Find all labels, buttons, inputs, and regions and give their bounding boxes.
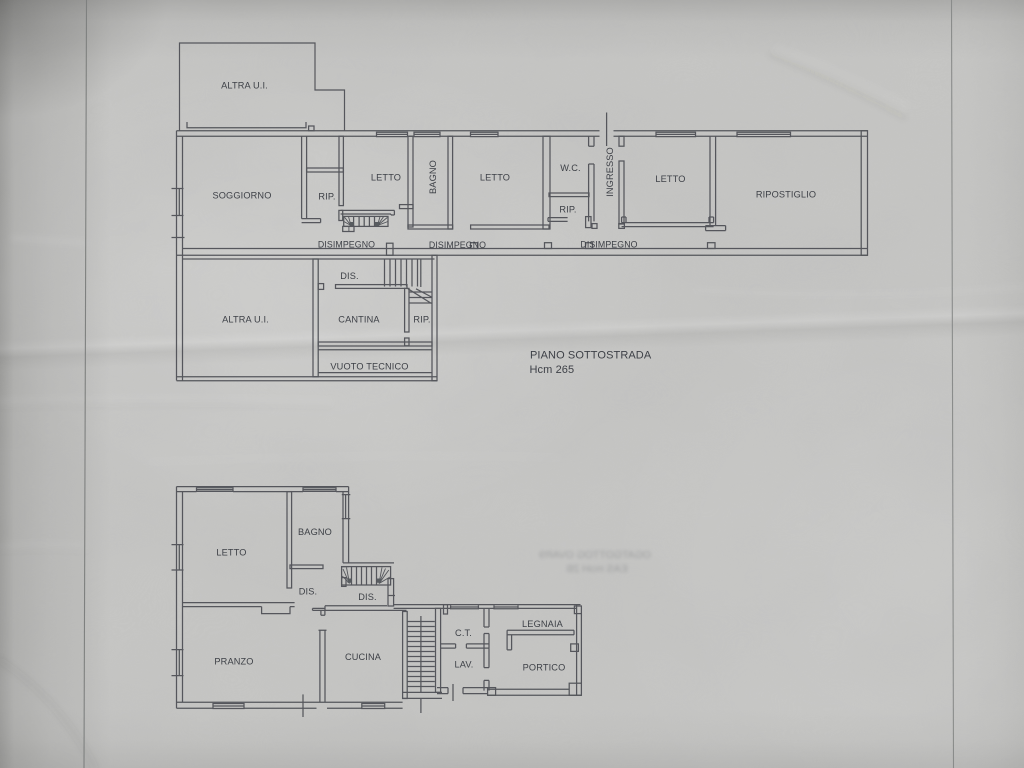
svg-text:DISIMPEGNO: DISIMPEGNO — [318, 239, 375, 249]
svg-text:DISIMPEGNO: DISIMPEGNO — [580, 240, 637, 250]
svg-text:PIANO SOTTOSTRADA: PIANO SOTTOSTRADA — [530, 350, 652, 362]
svg-text:BAGNO: BAGNO — [428, 160, 438, 194]
svg-text:SOGGIORNO: SOGGIORNO — [212, 191, 271, 201]
svg-text:BAGNO: BAGNO — [298, 527, 332, 537]
svg-text:ALTRA U.I.: ALTRA U.I. — [222, 315, 269, 325]
svg-text:DISIMPEGNO: DISIMPEGNO — [429, 240, 486, 250]
svg-text:PORTICO: PORTICO — [523, 662, 566, 672]
svg-text:DIS.: DIS. — [299, 586, 317, 596]
svg-text:RIP.: RIP. — [559, 205, 576, 215]
svg-text:INGRESSO: INGRESSO — [605, 147, 615, 197]
svg-text:DIS.: DIS. — [340, 271, 358, 281]
svg-text:DIS.: DIS. — [358, 592, 376, 602]
svg-text:LETTO: LETTO — [480, 173, 510, 183]
svg-text:VUOTO TECNICO: VUOTO TECNICO — [330, 361, 408, 371]
svg-text:LEGNAIA: LEGNAIA — [522, 619, 564, 629]
svg-text:RIP.: RIP. — [318, 192, 335, 202]
svg-text:CUCINA: CUCINA — [345, 652, 382, 662]
svg-text:Hcm 265: Hcm 265 — [530, 364, 575, 376]
svg-text:OGATGOTTOG OVAR9: OGATGOTTOG OVAR9 — [539, 549, 651, 561]
svg-text:LAV.: LAV. — [455, 660, 474, 670]
svg-text:LETTO: LETTO — [371, 173, 401, 183]
svg-text:C.T.: C.T. — [455, 628, 472, 638]
svg-text:PRANZO: PRANZO — [214, 657, 253, 667]
svg-text:CANTINA: CANTINA — [338, 315, 380, 325]
svg-text:ALTRA U.I.: ALTRA U.I. — [221, 81, 268, 91]
svg-text:LETTO: LETTO — [655, 174, 685, 184]
svg-text:RIP.: RIP. — [413, 315, 430, 325]
svg-text:LETTO: LETTO — [216, 547, 246, 557]
svg-text:W.C.: W.C. — [560, 163, 581, 173]
svg-text:EAS mɔH 2B: EAS mɔH 2B — [566, 563, 627, 575]
svg-text:RIPOSTIGLIO: RIPOSTIGLIO — [756, 190, 816, 200]
